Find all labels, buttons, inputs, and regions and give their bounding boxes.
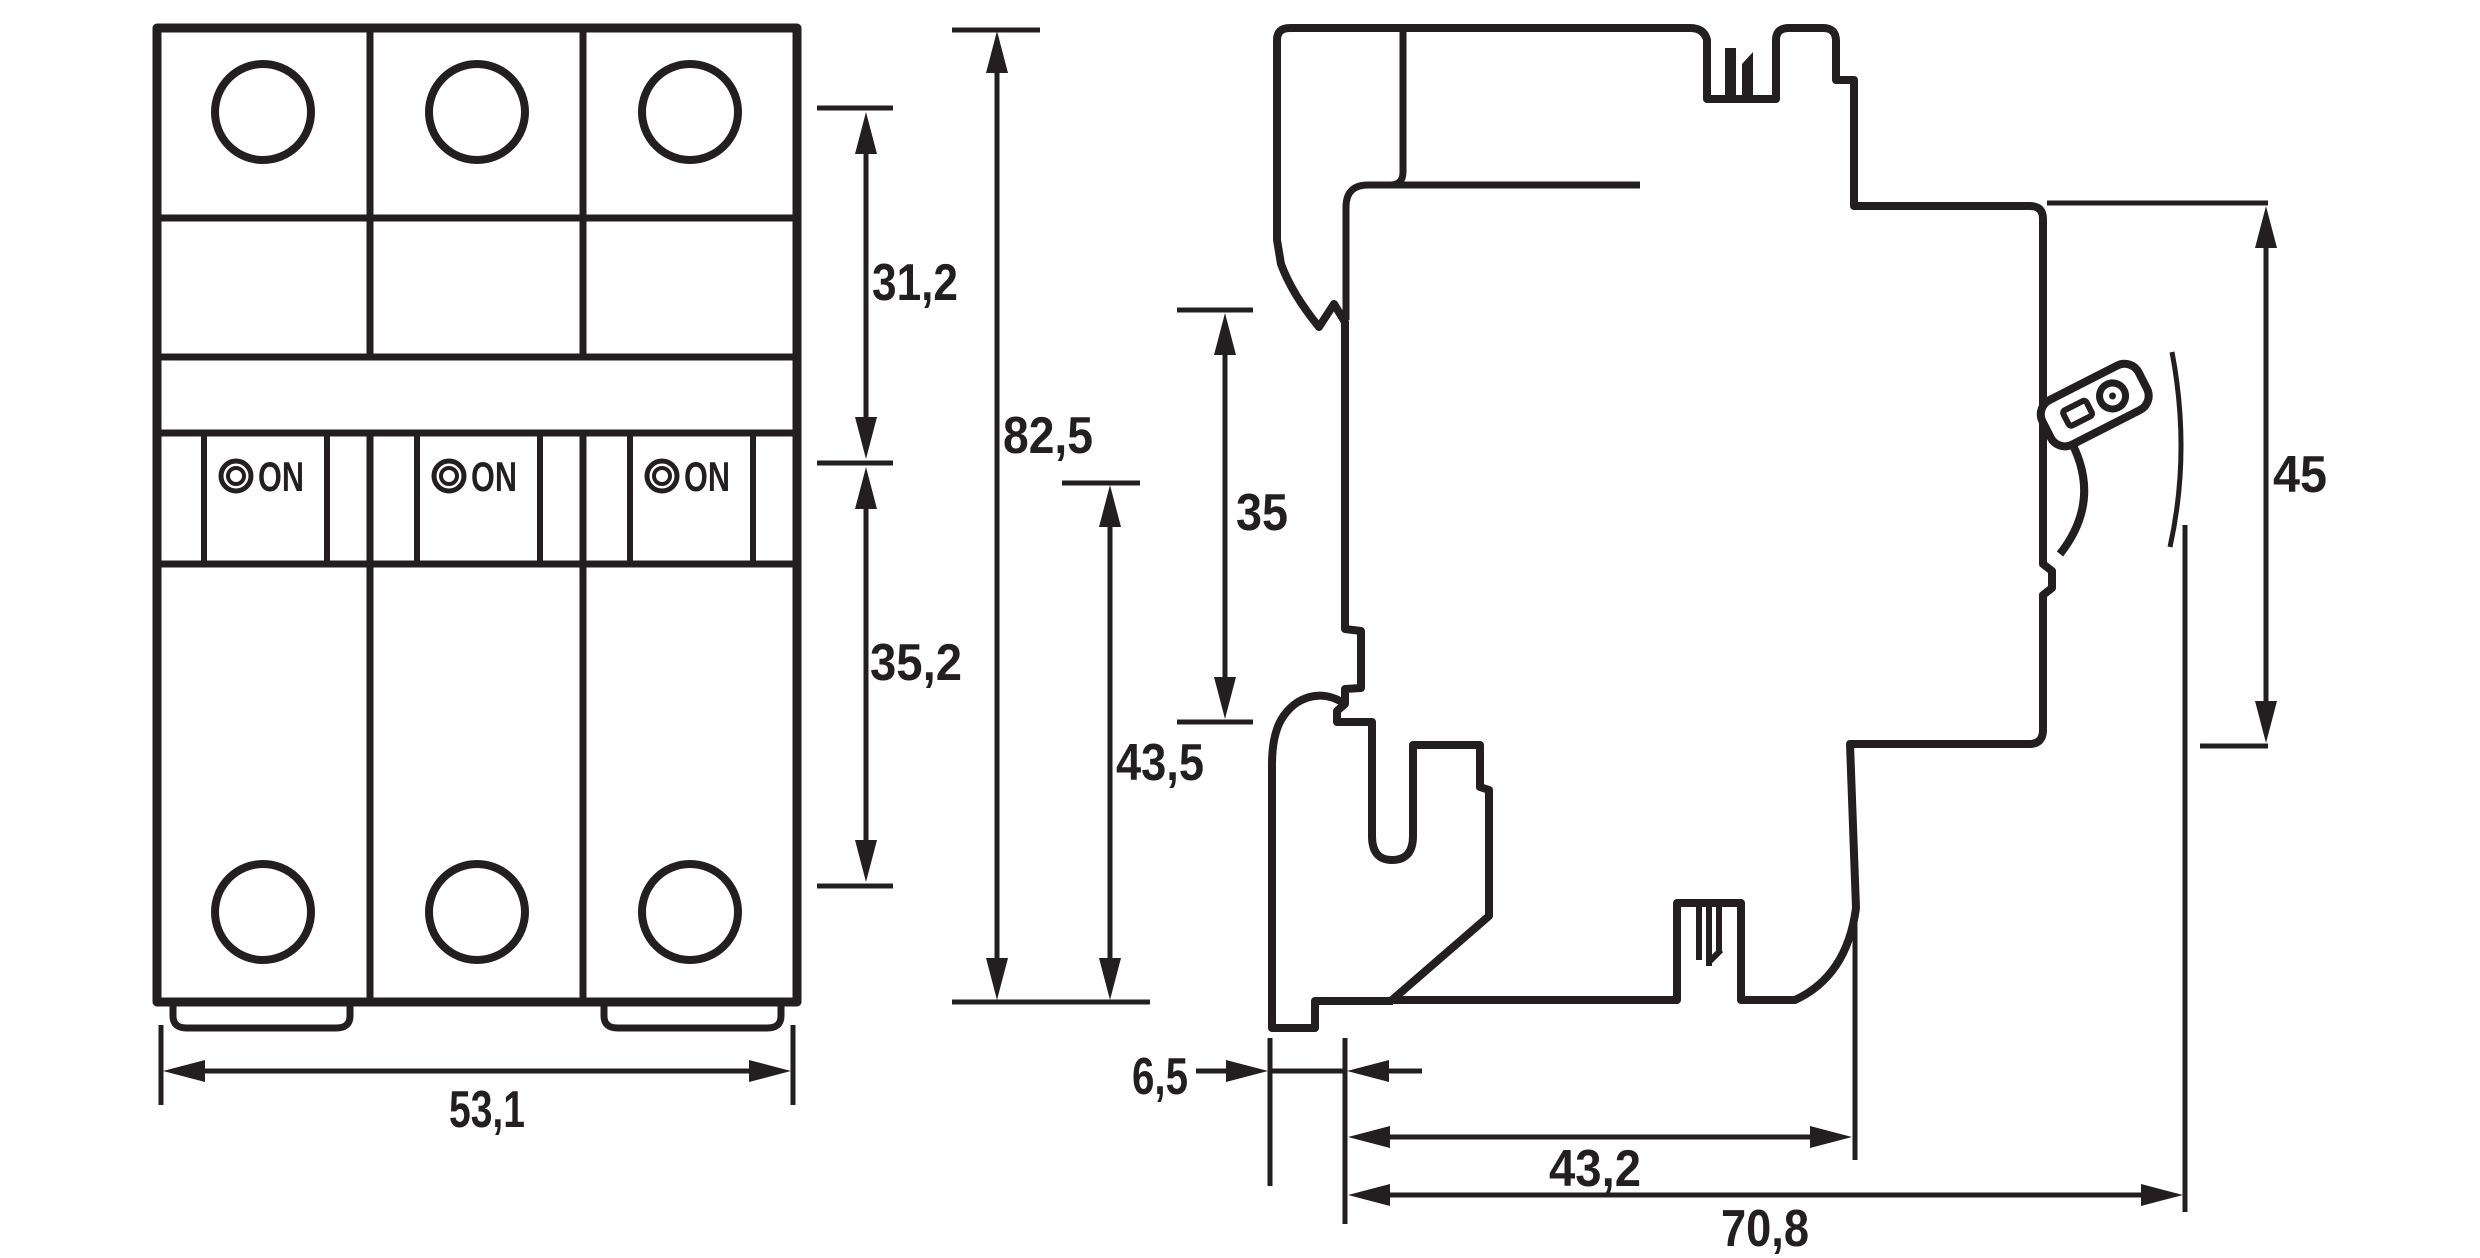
arrowhead-down-icon: [1214, 677, 1236, 719]
on-indicator-label: ON: [471, 453, 517, 500]
arrowhead-down-icon: [855, 417, 877, 459]
din-rail-hook-tab-edge: [1390, 30, 1403, 185]
arrowhead-right-icon: [1810, 1126, 1852, 1148]
on-indicator-lamp-inner-icon: [441, 468, 457, 484]
arrowhead-right-icon: [749, 1060, 791, 1082]
terminal-screw-icon: [642, 864, 738, 960]
toggle-window-pole-3: ON: [630, 433, 753, 564]
arrowhead-down-icon: [1099, 958, 1121, 1000]
terminal-screw-icon: [642, 64, 738, 160]
terminal-screw-icon: [215, 64, 311, 160]
arrowhead-down-icon: [855, 840, 877, 882]
front-foot-left: [173, 1006, 350, 1028]
on-indicator-label: ON: [684, 453, 730, 500]
dim-din-rail-seat-height: 35: [1177, 310, 1288, 722]
arrowhead-up-icon: [855, 112, 877, 154]
arrowhead-down-icon: [2255, 701, 2277, 743]
busbar-slot-fin: [1725, 48, 1736, 99]
on-indicator-lamp-inner-icon: [654, 468, 670, 484]
dimension-value: 43,5: [1116, 734, 1204, 792]
arrowhead-left-icon: [163, 1060, 205, 1082]
dim-upper-section-height: 31,2: [817, 108, 958, 463]
terminal-clamp-teeth: [1699, 903, 1721, 966]
side-view: [1272, 28, 2181, 1028]
arrowhead-up-icon: [986, 31, 1008, 73]
dimension-annotations: 53,1 31,2 35,2 82,5: [161, 30, 2327, 1258]
arrowhead-down-icon: [986, 958, 1008, 1000]
on-indicator-lamp-icon: [434, 461, 464, 491]
dim-rail-to-bottom-height: 43,5: [1062, 483, 1204, 1000]
toggle-base-arc: [2060, 436, 2084, 554]
dimension-value: 35: [1236, 484, 1288, 542]
on-indicator-lamp-icon: [647, 461, 677, 491]
toggle-swing-arc: [2170, 352, 2181, 547]
dim-lower-section-height: 35,2: [817, 467, 962, 886]
arrowhead-up-icon: [1214, 313, 1236, 355]
dim-total-height: 82,5: [952, 30, 1150, 1002]
terminal-screw-icon: [429, 64, 525, 160]
dim-mounting-depth: 43,2: [1348, 915, 1855, 1198]
din-rail-hook-inner-edge: [1346, 185, 1640, 320]
side-housing-outline: [1277, 28, 2052, 1000]
arrowhead-left-icon: [1348, 1184, 1390, 1206]
dimension-value: 45: [2273, 446, 2327, 504]
dimension-value: 82,5: [1003, 407, 1093, 465]
on-indicator-lamp-icon: [221, 461, 251, 491]
dimension-value: 70,8: [1721, 1200, 1809, 1258]
terminal-screw-icon: [215, 864, 311, 960]
toggle-handle-assembly: [2035, 352, 2181, 554]
arrowhead-left-icon: [1347, 1060, 1389, 1082]
arrowhead-left-icon: [1348, 1126, 1390, 1148]
dimension-value: 35,2: [870, 634, 962, 692]
front-foot-right: [604, 1006, 781, 1028]
dim-total-depth: 70,8: [1348, 525, 2185, 1258]
dim-front-width: 53,1: [161, 1025, 793, 1139]
arrowhead-right-icon: [1226, 1060, 1268, 1082]
on-indicator-label: ON: [258, 453, 304, 500]
technical-drawing-canvas: ON ON ON: [0, 0, 2480, 1258]
front-view: ON ON ON: [157, 28, 797, 1028]
arrowhead-up-icon: [855, 467, 877, 509]
toggle-window-pole-1: ON: [204, 433, 327, 564]
terminal-screw-icon: [429, 864, 525, 960]
toggle-lever: [2035, 358, 2154, 452]
on-indicator-lamp-inner-icon: [228, 468, 244, 484]
arrowhead-up-icon: [1099, 485, 1121, 527]
drawing-page: ON ON ON: [0, 0, 2480, 1258]
dimension-value: 53,1: [449, 1081, 525, 1139]
arrowhead-right-icon: [2141, 1184, 2183, 1206]
toggle-window-pole-2: ON: [417, 433, 540, 564]
dimension-value: 43,2: [1549, 1140, 1641, 1198]
toggle-lever-body: [2035, 358, 2154, 452]
dimension-value: 6,5: [1132, 1048, 1188, 1106]
arrowhead-up-icon: [2255, 206, 2277, 248]
front-housing-outline: [157, 28, 797, 1002]
dimension-value: 31,2: [872, 254, 958, 312]
busbar-slot-fin-chamfered: [1742, 52, 1753, 99]
